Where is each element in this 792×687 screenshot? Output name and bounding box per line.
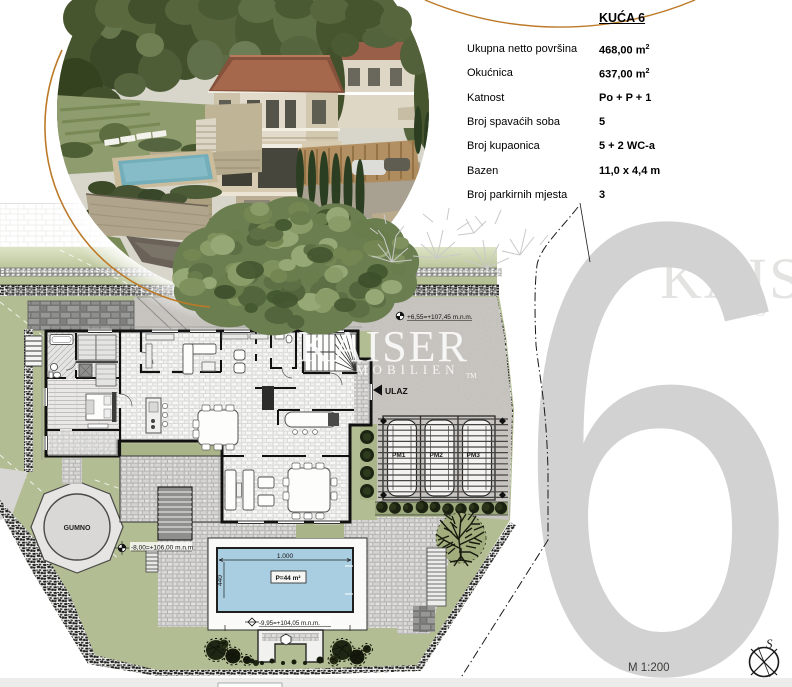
svg-text:ULAZ: ULAZ [385,386,408,396]
svg-text:GUMNO: GUMNO [64,525,91,532]
svg-text:-9,95=+104,05 m.n.m.: -9,95=+104,05 m.n.m. [259,620,320,627]
svg-text:1.000: 1.000 [277,553,294,560]
svg-text:S: S [766,636,773,651]
svg-text:6: 6 [511,89,792,687]
svg-text:PM2: PM2 [430,452,444,459]
svg-text:MOBILIEN: MOBILIEN [356,362,460,377]
svg-text:-8,00=+106,00 m.n.m.: -8,00=+106,00 m.n.m. [131,545,195,552]
svg-text:PM1: PM1 [392,452,406,459]
svg-text:PM3: PM3 [467,452,481,459]
svg-text:P=44 m²: P=44 m² [275,575,301,582]
svg-text:440: 440 [217,575,224,586]
svg-text:+6,55=+107,45 m.n.m.: +6,55=+107,45 m.n.m. [407,314,473,321]
svg-text:M 1:200: M 1:200 [628,662,670,674]
svg-text:TM: TM [466,372,477,380]
